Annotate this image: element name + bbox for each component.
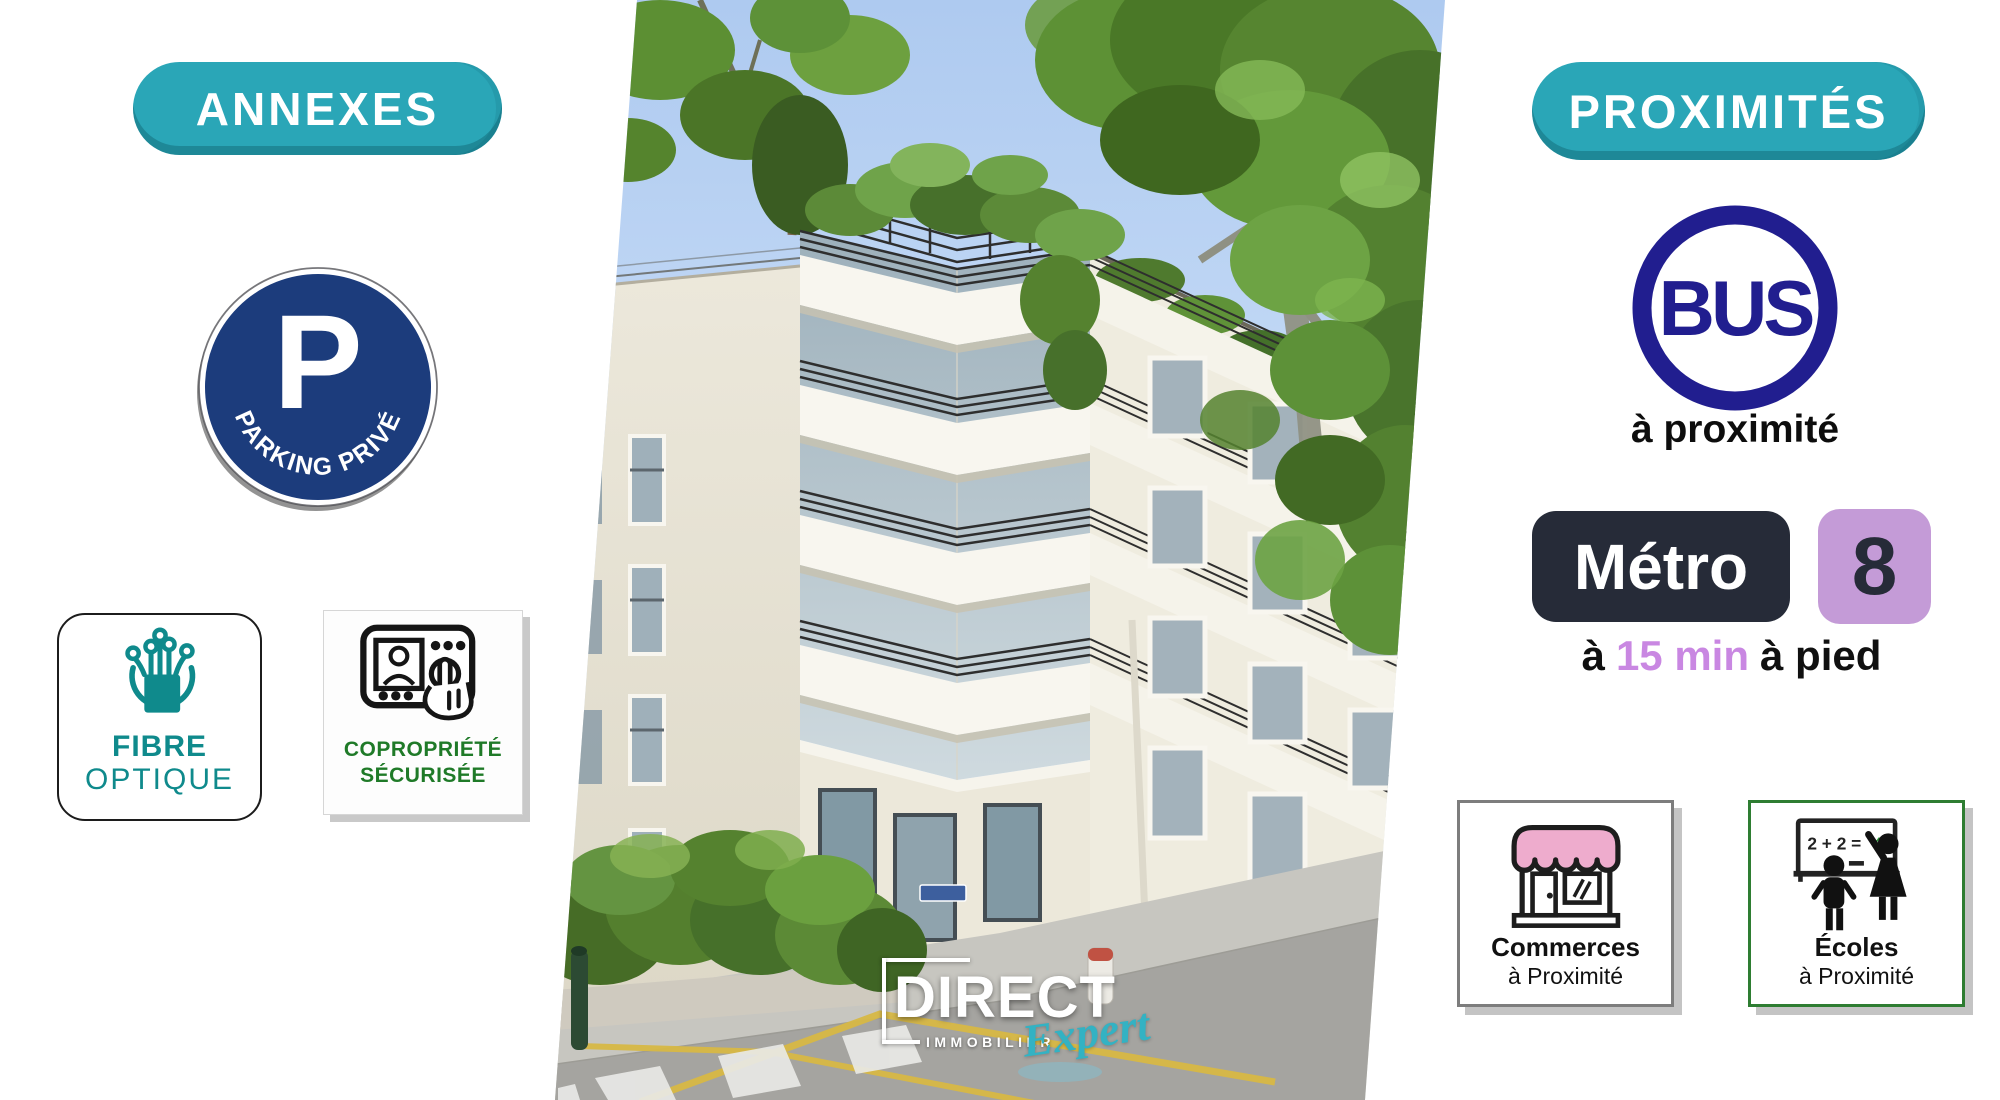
metro-walk-caption: à15 minà pied <box>1532 632 1931 680</box>
ecoles-label-line1: Écoles <box>1815 933 1899 963</box>
property-poster: DIRECT IMMOBILIER Expert ANNEXES P PARKI… <box>0 0 2000 1100</box>
ecoles-card: 2 + 2 = 4 Écoles à Proximité <box>1748 800 1965 1007</box>
fibre-label-line1: FIBRE <box>112 731 207 763</box>
secured-residence-card: COPROPRIÉTÉ SÉCURISÉE <box>323 610 523 815</box>
metro-line-number: 8 <box>1818 509 1931 624</box>
agency-logo: DIRECT IMMOBILIER Expert <box>876 946 1176 1086</box>
private-parking-sign: P PARKING PRIVÉ <box>188 256 450 524</box>
bus-label: BUS <box>1659 264 1813 352</box>
school-icon: 2 + 2 = 4 <box>1782 811 1932 933</box>
bus-logo: BUS <box>1610 195 1860 425</box>
commerces-label-line1: Commerces <box>1491 933 1640 963</box>
street-sign <box>920 885 966 901</box>
parking-letter: P <box>273 288 362 437</box>
copro-label-line2: SÉCURISÉE <box>360 763 486 789</box>
walk-prefix: à <box>1582 632 1605 679</box>
fibre-optic-icon <box>104 627 216 731</box>
copro-label-line1: COPROPRIÉTÉ <box>344 737 502 763</box>
walk-suffix: à pied <box>1760 632 1881 679</box>
fibre-label-line2: OPTIQUE <box>85 763 234 796</box>
metro-badge: Métro <box>1532 511 1790 622</box>
commerces-card: Commerces à Proximité <box>1457 800 1674 1007</box>
proximites-header: PROXIMITÉS <box>1532 62 1925 160</box>
logo-bracket <box>882 958 886 1044</box>
fibre-optique-card: FIBRE OPTIQUE <box>57 613 262 821</box>
board-equation: 2 + 2 = <box>1807 834 1861 854</box>
ecoles-label-line2: à Proximité <box>1799 963 1914 991</box>
logo-bracket <box>882 1040 920 1044</box>
annexes-header: ANNEXES <box>133 62 502 155</box>
commerces-label-line2: à Proximité <box>1508 963 1623 991</box>
shop-icon <box>1491 811 1641 933</box>
walk-time: 15 min <box>1616 632 1749 679</box>
intercom-icon <box>355 619 491 737</box>
bus-caption: à proximité <box>1575 408 1895 452</box>
logo-bracket <box>882 958 970 962</box>
